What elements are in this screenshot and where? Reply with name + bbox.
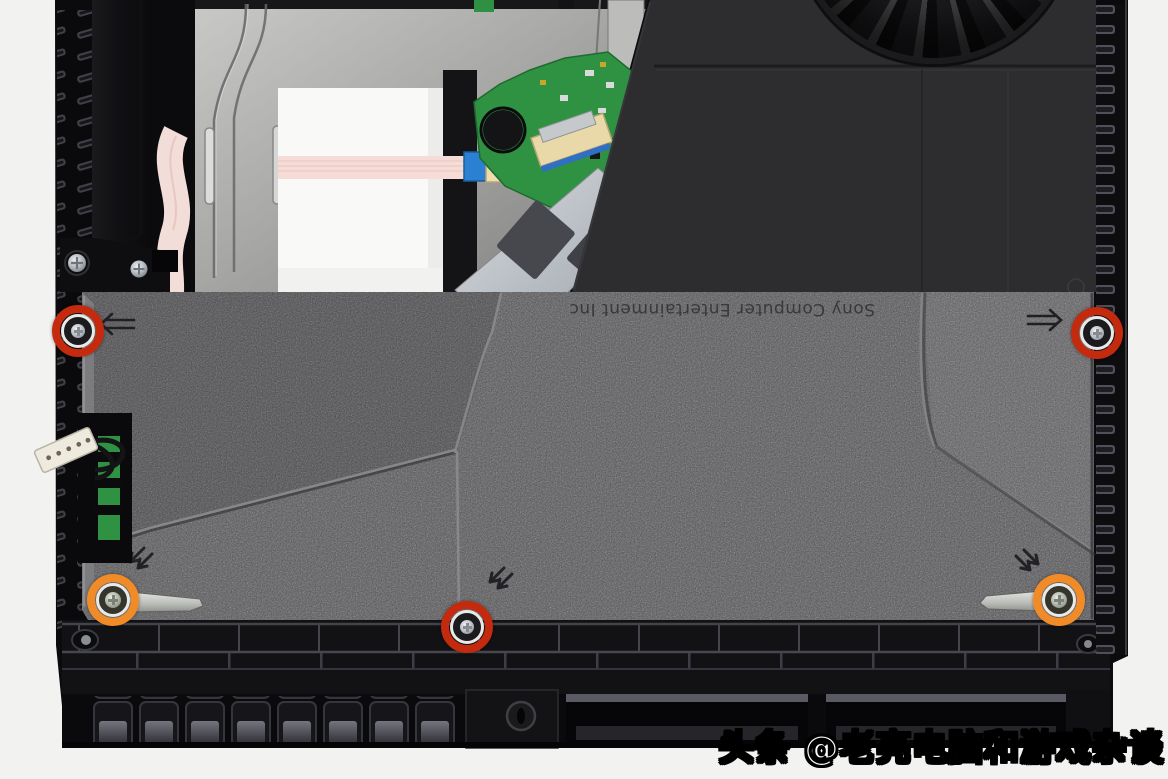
callout-inner-ring [61, 314, 95, 348]
callout-inner-ring [1080, 316, 1114, 350]
bottom-frame-grid [62, 620, 1110, 694]
ps4-teardown-photo: Sony Computer Entertainment Inc [0, 0, 1168, 779]
fan-shroud [572, 0, 1096, 295]
sony-embossed-text: Sony Computer Entertainment Inc [569, 299, 875, 319]
phillips-screw-icon [1051, 592, 1067, 608]
photo-canvas: Sony Computer Entertainment Inc [0, 0, 1168, 779]
callout-inner-ring [96, 583, 130, 617]
screw-callout-red-bottom-center [441, 601, 493, 653]
watermark-text: 头条 @老亮电脑和游戏杂谈 [719, 720, 1164, 771]
screw-callout-orange-bottom-left [87, 574, 139, 626]
screw-callout-red-top-left [52, 305, 104, 357]
drive-label [278, 88, 443, 292]
phillips-screw-icon [460, 620, 474, 634]
phillips-screw-icon [71, 324, 85, 338]
screw-callout-red-top-right [1071, 307, 1123, 359]
psu-cover: Sony Computer Entertainment Inc [82, 292, 1094, 620]
phillips-screw-icon [1090, 326, 1104, 340]
callout-inner-ring [1042, 583, 1076, 617]
callout-inner-ring [450, 610, 484, 644]
phillips-screw-icon [105, 592, 121, 608]
screw-callout-orange-bottom-right [1033, 574, 1085, 626]
